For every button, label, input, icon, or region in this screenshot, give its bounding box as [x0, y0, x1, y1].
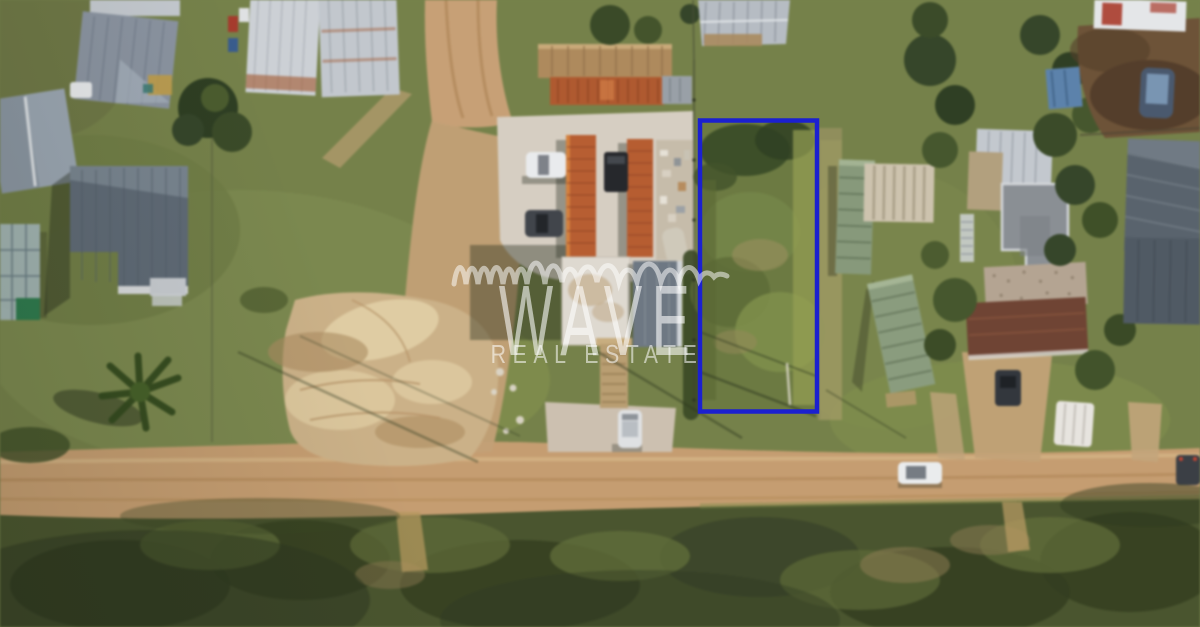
aerial-photo-listing: WAVE REAL ESTATE — [0, 0, 1200, 627]
lot-boundary-outline — [700, 121, 817, 412]
lot-outline-layer — [0, 0, 1200, 627]
